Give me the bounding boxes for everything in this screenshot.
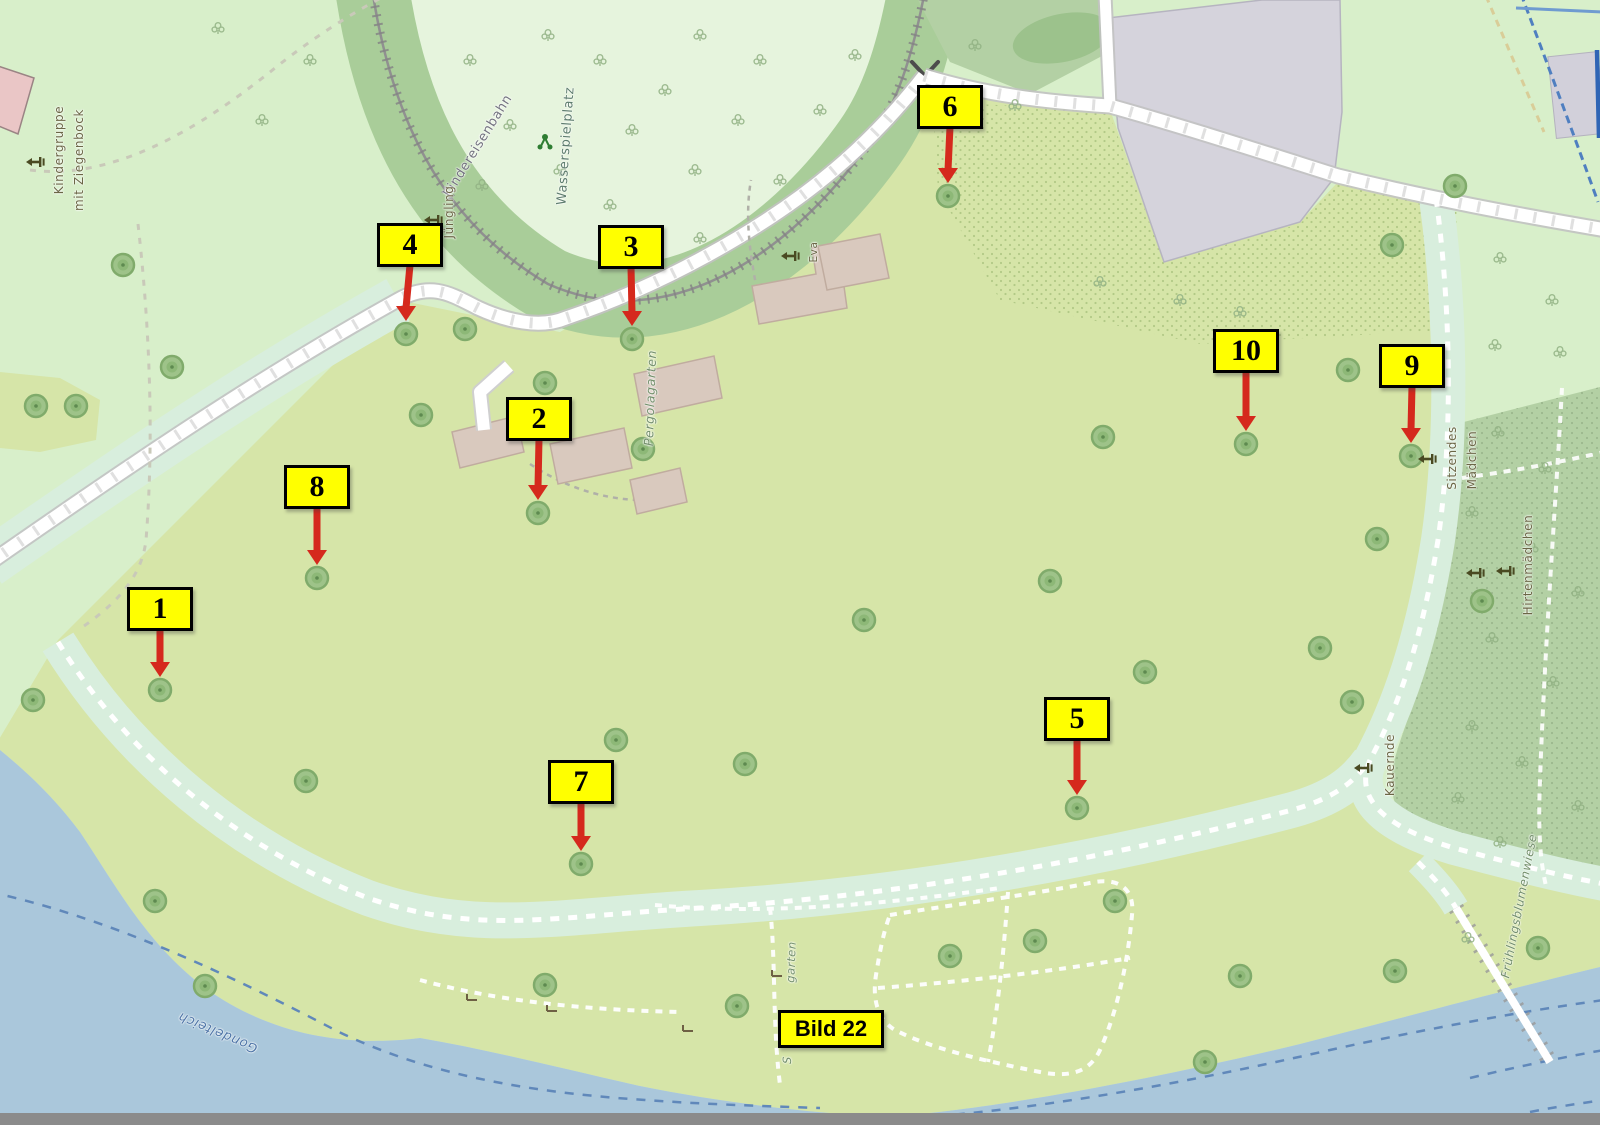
- tree-symbol: [1527, 937, 1549, 959]
- tree-symbol: [853, 609, 875, 631]
- tree-symbol: [939, 945, 961, 967]
- map-canvas: Kindergruppemit ZiegenbockKindereisenbah…: [0, 0, 1600, 1125]
- small-building-right: [1548, 52, 1600, 139]
- tree-symbol: [1092, 426, 1114, 448]
- tree-symbol: [1039, 570, 1061, 592]
- map-base-art: [0, 0, 1600, 1125]
- tree-symbol: [1309, 637, 1331, 659]
- tree-symbol: [1384, 960, 1406, 982]
- image-number-label: Bild 22: [778, 1010, 884, 1048]
- tree-symbol: [1229, 965, 1251, 987]
- tree-symbol: [161, 356, 183, 378]
- tree-symbol: [632, 438, 654, 460]
- tree-symbol: [295, 770, 317, 792]
- tree-symbol-target: [306, 567, 328, 589]
- tree-symbol: [454, 318, 476, 340]
- tree-symbol: [534, 372, 556, 394]
- tree-symbol-target: [621, 328, 643, 350]
- tree-symbol: [25, 395, 47, 417]
- tree-symbol: [1134, 661, 1156, 683]
- tree-symbol-target: [1235, 433, 1257, 455]
- tree-symbol: [1381, 234, 1403, 256]
- tree-symbol: [194, 975, 216, 997]
- tree-symbol-target: [1066, 797, 1088, 819]
- tree-symbol-target: [1400, 445, 1422, 467]
- bottom-edge-bar: [0, 1113, 1600, 1125]
- tree-symbol: [410, 404, 432, 426]
- tree-symbol: [1341, 691, 1363, 713]
- tree-symbol: [1337, 359, 1359, 381]
- tree-symbol: [144, 890, 166, 912]
- tree-symbol: [734, 753, 756, 775]
- tree-symbol: [1366, 528, 1388, 550]
- tree-symbol: [1024, 930, 1046, 952]
- tree-symbol: [112, 254, 134, 276]
- tree-symbol: [1444, 175, 1466, 197]
- tree-symbol: [22, 689, 44, 711]
- tree-symbol-target: [937, 185, 959, 207]
- tree-symbol-target: [527, 502, 549, 524]
- tree-symbol: [1471, 590, 1493, 612]
- tree-symbol: [534, 974, 556, 996]
- tree-symbol-target: [149, 679, 171, 701]
- tree-symbol: [726, 995, 748, 1017]
- tree-symbol: [65, 395, 87, 417]
- tree-symbol: [1194, 1051, 1216, 1073]
- tree-symbol-target: [570, 853, 592, 875]
- tree-symbol-target: [395, 323, 417, 345]
- tree-symbol: [1104, 890, 1126, 912]
- tree-symbol: [605, 729, 627, 751]
